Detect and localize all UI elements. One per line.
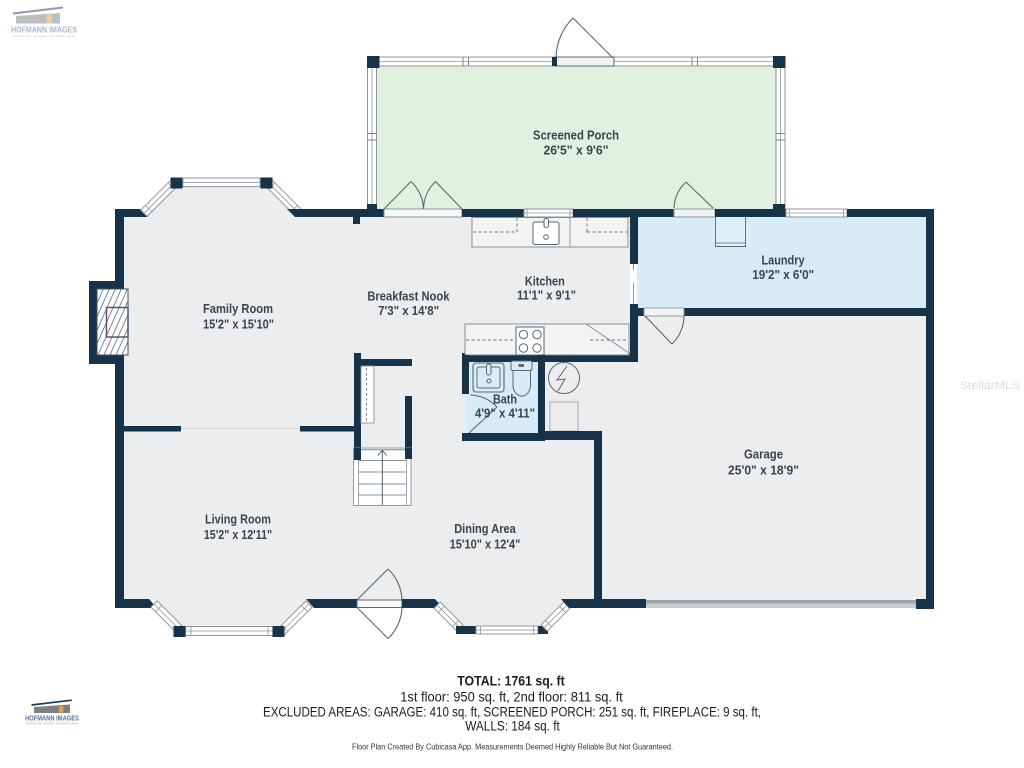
svg-text:TOTAL: 1761 sq. ft: TOTAL: 1761 sq. ft: [457, 673, 565, 688]
svg-text:1st floor: 950 sq. ft, 2nd flo: 1st floor: 950 sq. ft, 2nd floor: 811 sq…: [400, 689, 623, 704]
svg-text:Floor Plan Created By Cubicasa: Floor Plan Created By Cubicasa App. Meas…: [352, 743, 673, 752]
svg-text:25'0" x 18'9": 25'0" x 18'9": [728, 463, 799, 477]
svg-text:WALLS: 184 sq. ft: WALLS: 184 sq. ft: [465, 718, 560, 733]
svg-text:4'9" x 4'11": 4'9" x 4'11": [475, 407, 535, 421]
svg-text:Kitchen: Kitchen: [525, 274, 565, 288]
svg-text:HOFMANN IMAGES: HOFMANN IMAGES: [11, 25, 77, 35]
svg-text:Bath: Bath: [493, 393, 517, 407]
svg-text:StellarMLS: StellarMLS: [960, 380, 1020, 392]
svg-text:Living Room: Living Room: [205, 513, 271, 527]
svg-text:EXCLUDED AREAS: GARAGE: 410 sq: EXCLUDED AREAS: GARAGE: 410 sq. ft, SCRE…: [263, 705, 761, 720]
svg-text:ARCHITECTURE · INTERIORS · REA: ARCHITECTURE · INTERIORS · REAL ESTATE ·…: [26, 722, 78, 726]
svg-text:15'2" x 12'11": 15'2" x 12'11": [204, 528, 272, 542]
svg-text:Garage: Garage: [744, 448, 783, 462]
svg-text:7'3" x 14'8": 7'3" x 14'8": [378, 304, 439, 318]
svg-text:26'5" x 9'6": 26'5" x 9'6": [543, 144, 608, 158]
svg-text:Dining Area: Dining Area: [454, 522, 517, 536]
svg-text:ARCHITECTURE · INTERIORS · REA: ARCHITECTURE · INTERIORS · REAL ESTATE ·…: [13, 35, 76, 39]
svg-text:Breakfast Nook: Breakfast Nook: [367, 290, 449, 304]
svg-text:15'2" x 15'10": 15'2" x 15'10": [203, 318, 274, 332]
svg-text:11'1" x 9'1": 11'1" x 9'1": [517, 288, 576, 302]
svg-text:15'10" x 12'4": 15'10" x 12'4": [450, 537, 521, 551]
svg-text:Laundry: Laundry: [761, 254, 804, 268]
svg-text:Screened Porch: Screened Porch: [533, 128, 619, 142]
svg-text:Family Room: Family Room: [203, 302, 273, 316]
svg-text:19'2" x 6'0": 19'2" x 6'0": [752, 268, 814, 282]
